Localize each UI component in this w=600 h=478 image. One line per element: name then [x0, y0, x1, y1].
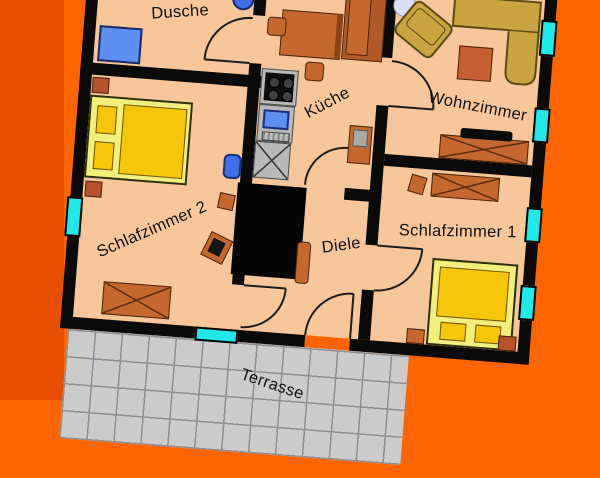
dresser-schlafzimmer2	[101, 281, 171, 319]
chair-seat	[207, 238, 225, 257]
kitchen-tall-cupboard	[341, 0, 388, 62]
floorplan-canvas: Dusche Küche Wohnzimmer Schlafzimmer 2 D…	[0, 0, 600, 400]
nightstand-schlafzimmer1-right	[498, 335, 517, 351]
pillow	[95, 105, 117, 134]
window-left-wall	[64, 196, 83, 237]
stool-schlafzimmer2	[217, 192, 236, 211]
nightstand-schlafzimmer2-top	[92, 77, 110, 94]
left-border-band	[0, 0, 64, 400]
bed-schlafzimmer2	[84, 95, 193, 186]
nightstand-schlafzimmer1-left	[406, 328, 425, 344]
washbasin	[222, 153, 242, 179]
pillow	[439, 322, 466, 342]
window-right-wall-4	[518, 285, 537, 321]
apartment-floorplan: Dusche Küche Wohnzimmer Schlafzimmer 2 D…	[51, 0, 566, 478]
nightstand-schlafzimmer2-bottom	[84, 180, 102, 197]
room-label-dusche: Dusche	[151, 1, 210, 23]
stove	[259, 68, 299, 107]
sink-basin	[262, 109, 289, 130]
room-label-schlafzimmer1: Schlafzimmer 1	[399, 221, 517, 242]
kitchen-sink	[256, 104, 295, 144]
kitchen-fridge-cabinet	[347, 125, 373, 165]
kitchen-stool-2	[304, 61, 324, 81]
mattress	[436, 267, 510, 322]
fridge-front-panel	[352, 129, 368, 147]
kitchen-stool-1	[267, 16, 287, 36]
kitchen-table	[279, 9, 343, 60]
coffee-table	[457, 45, 494, 82]
window-right-wall-3	[524, 207, 543, 243]
cooktop	[263, 72, 294, 102]
window-right-wall-2	[532, 107, 551, 143]
shower-tray	[97, 25, 143, 64]
mattress	[118, 104, 187, 179]
dishwasher	[252, 141, 291, 181]
pillow	[93, 141, 115, 170]
